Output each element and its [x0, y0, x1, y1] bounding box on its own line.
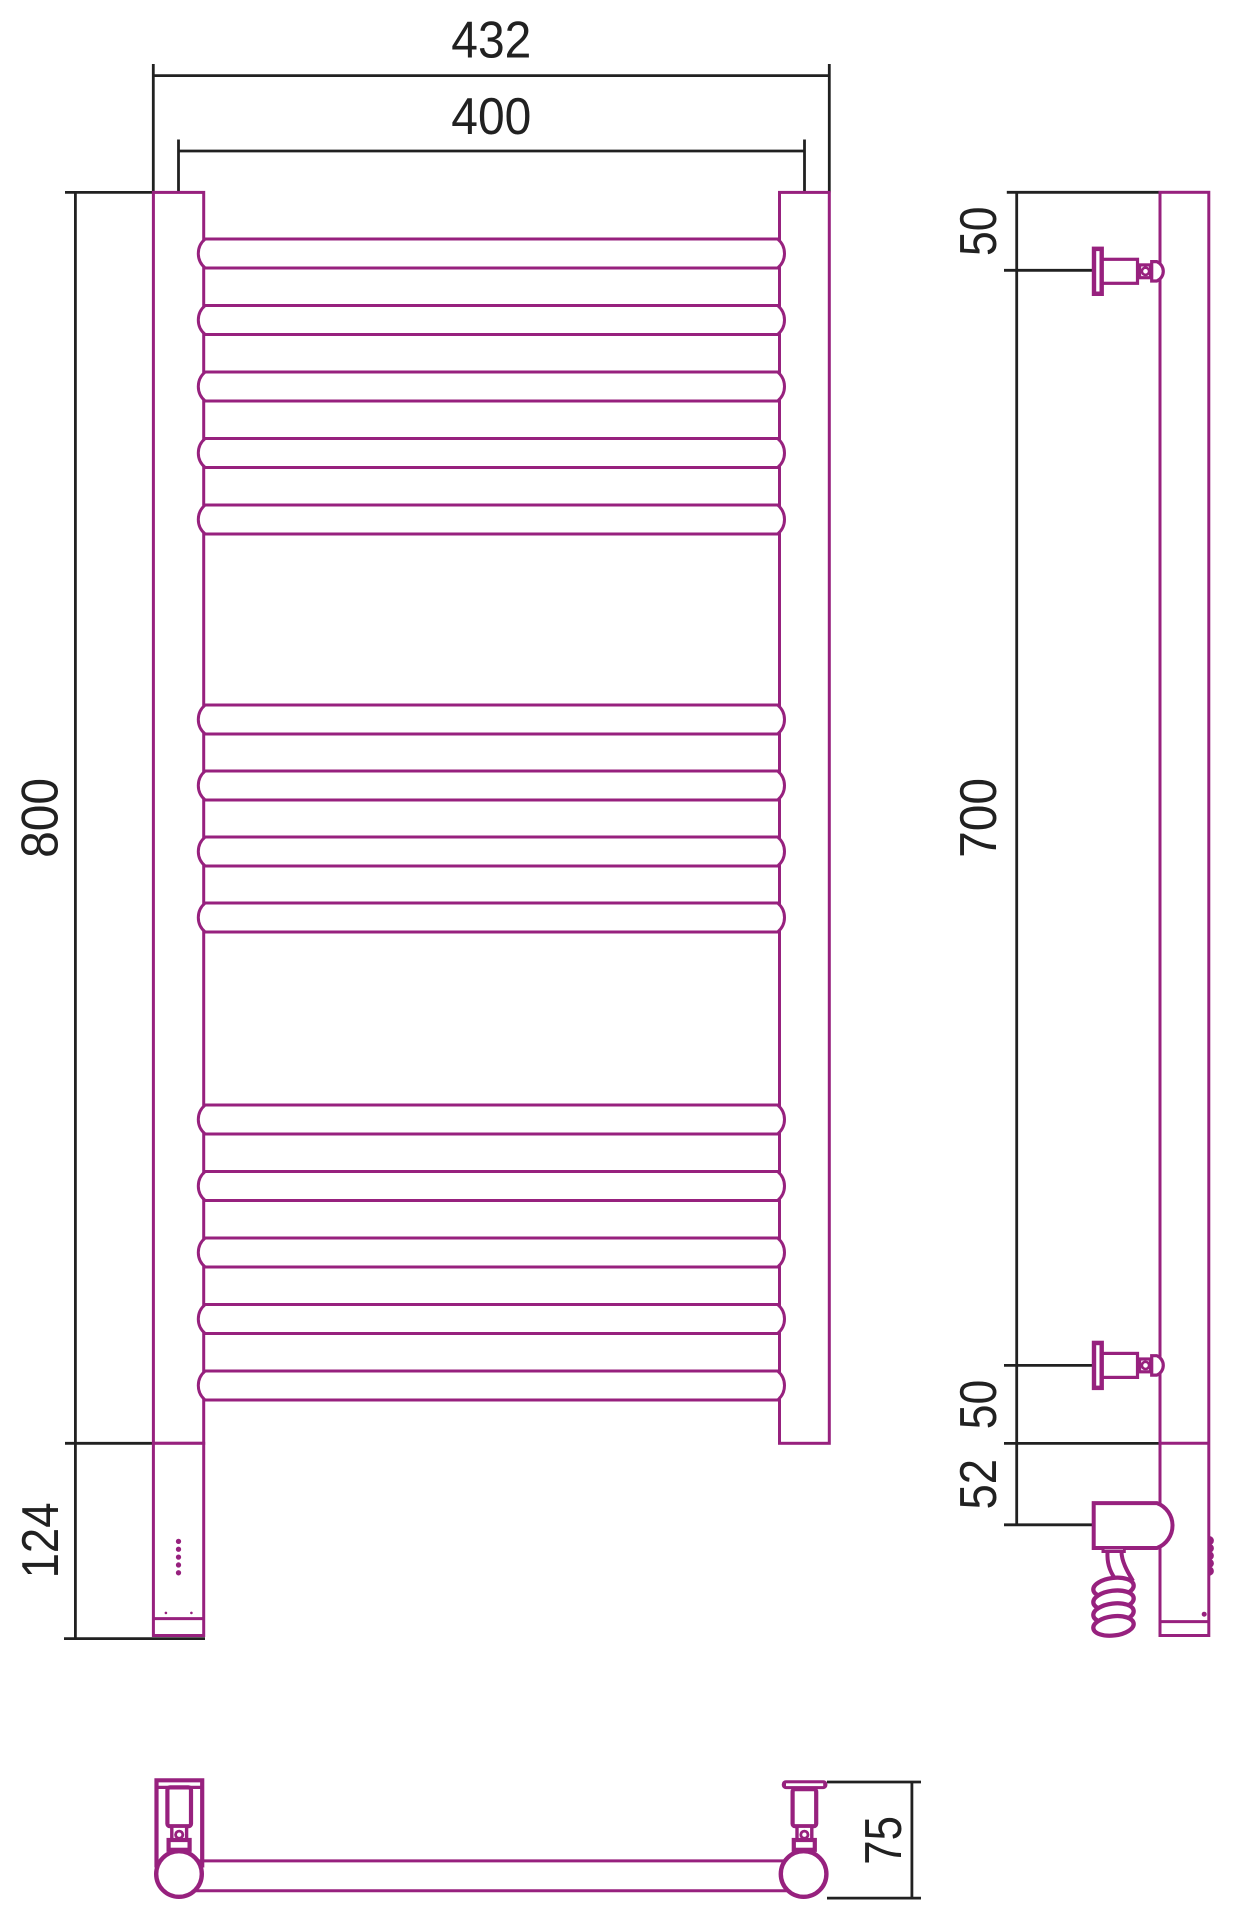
- svg-text:400: 400: [451, 88, 531, 146]
- svg-text:52: 52: [950, 1459, 1008, 1510]
- svg-text:50: 50: [950, 1380, 1008, 1430]
- svg-text:124: 124: [12, 1502, 70, 1578]
- svg-text:432: 432: [451, 11, 531, 69]
- svg-text:75: 75: [855, 1816, 913, 1865]
- svg-text:50: 50: [950, 207, 1008, 256]
- svg-text:700: 700: [950, 778, 1008, 858]
- svg-text:800: 800: [11, 778, 69, 858]
